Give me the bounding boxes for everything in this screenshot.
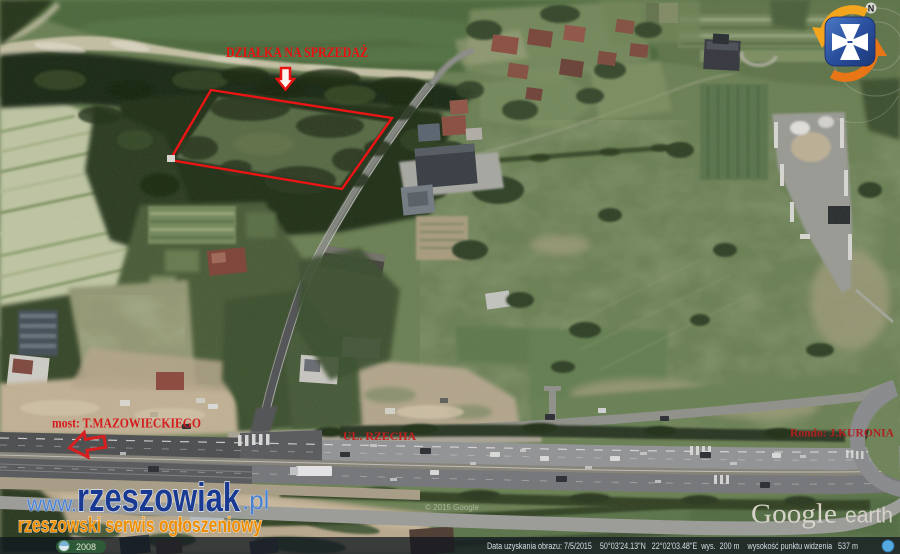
svg-text:N: N	[868, 4, 875, 14]
svg-text:most: T.MAZOWIECKIEGO: most: T.MAZOWIECKIEGO	[52, 416, 201, 431]
svg-text:DZIAŁKA NA SPRZEDAŻ: DZIAŁKA NA SPRZEDAŻ	[226, 44, 368, 61]
svg-text:Google: Google	[751, 498, 837, 529]
svg-text:.pl: .pl	[242, 485, 269, 515]
svg-text:rzeszowski serwis ogłoszeniowy: rzeszowski serwis ogłoszeniowy	[18, 514, 262, 537]
svg-text:© 2015 Google: © 2015 Google	[425, 503, 479, 512]
svg-text:www.: www.	[26, 493, 77, 516]
svg-text:earth: earth	[845, 503, 893, 528]
svg-text:Data uzyskania obrazu: 7/5/201: Data uzyskania obrazu: 7/5/2015 50°03'24…	[487, 541, 858, 551]
svg-text:2008: 2008	[76, 542, 96, 552]
svg-text:Rondo: J.KURONIA: Rondo: J.KURONIA	[790, 426, 894, 440]
svg-text:UL. RZECHA: UL. RZECHA	[343, 429, 416, 443]
